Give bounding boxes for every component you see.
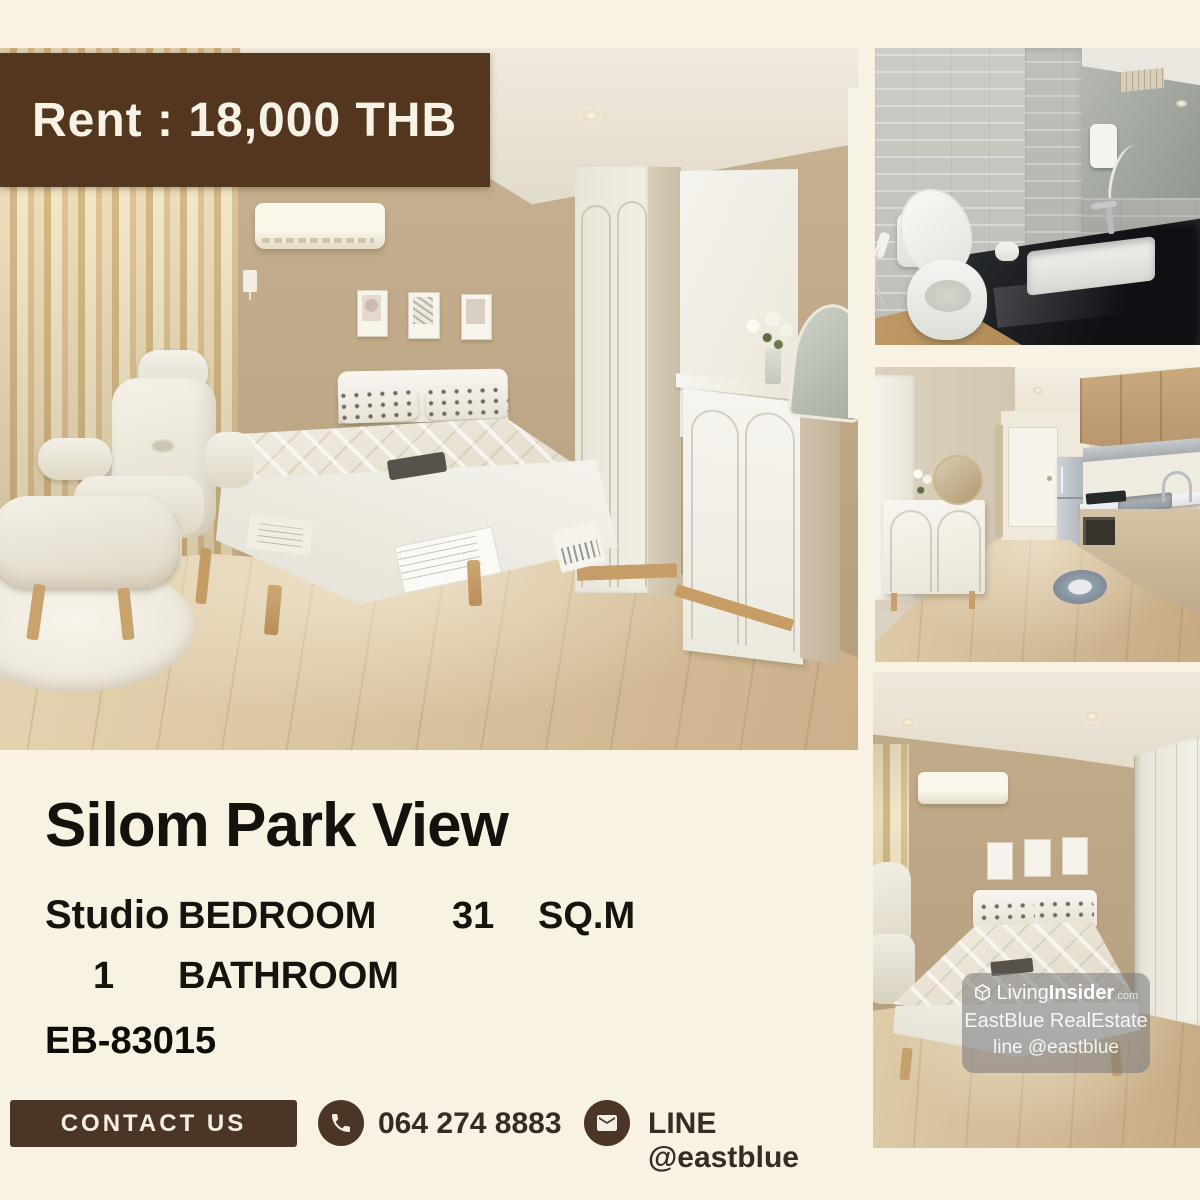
watermark-brand-row: LivingInsider.com: [962, 981, 1150, 1008]
entry-door: [1008, 427, 1058, 527]
armchair-tuft: [152, 440, 174, 452]
downlight: [582, 110, 600, 121]
watermark-brand-tld: .com: [1114, 990, 1138, 1002]
flyer-canvas: Rent : 18,000 THB: [0, 0, 1200, 1200]
bed-leg: [467, 560, 482, 607]
frame-1-art: [362, 295, 381, 321]
frame-small: [987, 842, 1013, 880]
microwave-nook: [1083, 517, 1115, 545]
photo-bedroom-2: LivingInsider.com EastBlue RealEstate li…: [873, 672, 1200, 1148]
dresser-side: [800, 400, 840, 665]
downlight-2: [901, 718, 915, 727]
pillow-2: [979, 901, 1036, 926]
spec-unit-type: Studio: [45, 893, 169, 938]
contact-us-button[interactable]: CONTACT US: [10, 1100, 297, 1147]
paper-holder: [995, 242, 1019, 261]
frame-2: [408, 292, 440, 339]
mirror-downlight: [1176, 100, 1187, 107]
door-frame-sliver: [995, 425, 1003, 537]
flower-bouquet: [742, 310, 798, 356]
rent-banner-text: Rent : 18,000 THB: [32, 93, 457, 148]
pillow-2: [1037, 900, 1094, 924]
frame-small: [1062, 837, 1088, 875]
page-title: Silom Park View: [45, 790, 508, 861]
spec-bedroom-label: BEDROOM: [178, 895, 376, 938]
console-door-arch: [937, 510, 981, 592]
photo-bathroom: [875, 48, 1200, 345]
frame-3: [461, 294, 492, 340]
toilet-bowl-inner: [925, 280, 971, 312]
frame-1: [357, 290, 388, 337]
console-cabinet: [883, 500, 985, 594]
phone-number[interactable]: 064 274 8883: [378, 1107, 562, 1141]
spec-bathroom-label: BATHROOM: [178, 955, 399, 998]
hall-downlight: [1033, 387, 1043, 394]
phone-icon: [329, 1111, 353, 1135]
contact-us-label: CONTACT US: [61, 1110, 247, 1138]
line-badge[interactable]: [584, 1100, 630, 1146]
line-handle[interactable]: LINE @eastblue: [648, 1107, 870, 1175]
pillow: [425, 386, 508, 421]
ac-unit-2: [918, 772, 1008, 804]
round-mirror: [933, 455, 983, 505]
photo-kitchen: [875, 367, 1200, 662]
frame-2-art: [413, 297, 433, 324]
watermark-card: LivingInsider.com EastBlue RealEstate li…: [962, 973, 1150, 1073]
armchair-armrest: [38, 438, 112, 480]
spec-area-value: 31: [452, 895, 494, 938]
water-heater: [1090, 124, 1117, 168]
phone-badge[interactable]: [318, 1100, 364, 1146]
mirror-vent: [1120, 68, 1164, 93]
fridge-handle: [1061, 467, 1063, 493]
console-door-arch: [890, 510, 932, 592]
watermark-brand-bold: Insider: [1049, 982, 1115, 1004]
frame-3-art: [466, 299, 485, 324]
armchair-armrest: [206, 432, 254, 488]
door-handle: [1047, 476, 1052, 481]
wardrobe-door-arch: [617, 201, 647, 587]
console-leg: [969, 591, 975, 609]
contact-bar: CONTACT US 064 274 8883 LINE @eastblue: [0, 1096, 870, 1150]
console-leg: [891, 593, 897, 611]
wall-switch: [243, 270, 257, 292]
spec-bathroom-count: 1: [93, 955, 114, 998]
frame-small: [1024, 839, 1051, 877]
kitchen-faucet: [1162, 471, 1192, 502]
ottoman: [0, 496, 178, 588]
console-flowers: [909, 465, 935, 501]
window-light-sliver: [848, 88, 858, 418]
cube-logo-icon: [974, 984, 991, 1001]
watermark-agency: EastBlue RealEstate: [962, 1008, 1150, 1035]
pillow: [338, 388, 419, 424]
ac-vent: [262, 238, 374, 243]
spec-area-unit: SQ.M: [538, 895, 635, 938]
rent-banner: Rent : 18,000 THB: [0, 53, 490, 187]
watermark-line-handle: line @eastblue: [962, 1035, 1150, 1061]
listing-code: EB-83015: [45, 1020, 216, 1063]
watermark-brand-prefix: Living: [996, 982, 1048, 1004]
mail-icon: [595, 1111, 619, 1135]
downlight-2: [1085, 712, 1099, 721]
